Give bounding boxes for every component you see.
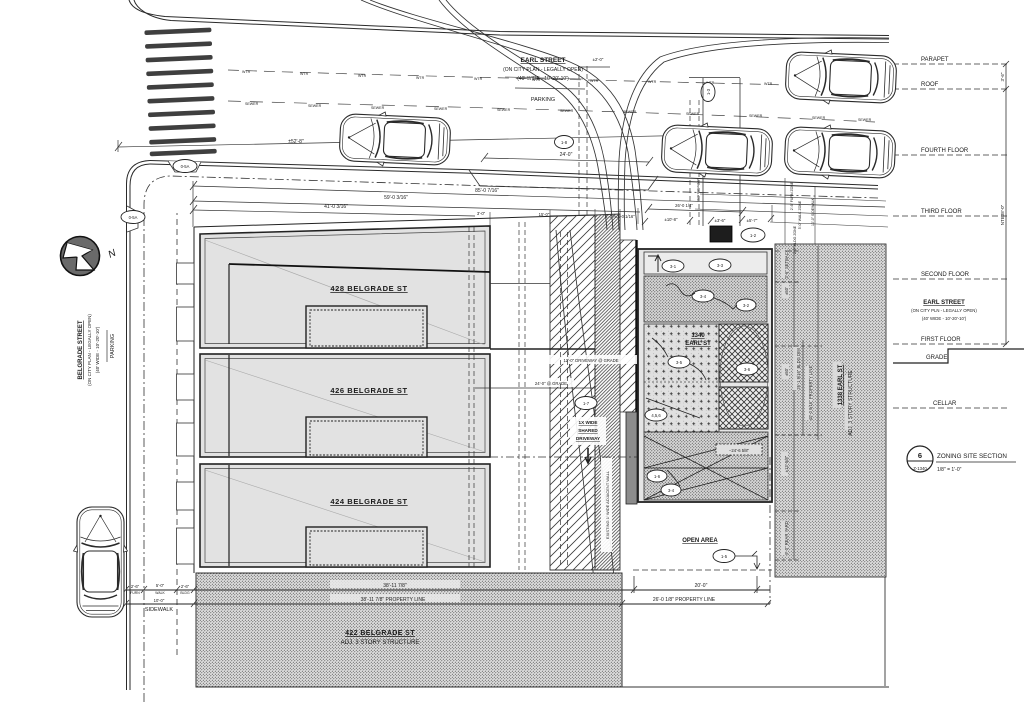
- svg-text:±3'-6": ±3'-6": [715, 218, 726, 223]
- svg-text:NTE38'-0": NTE38'-0": [1000, 204, 1005, 225]
- svg-text:ROOF: ROOF: [921, 82, 939, 88]
- svg-text:SEWER: SEWER: [560, 109, 574, 113]
- svg-text:3'-6" SETBACK: 3'-6" SETBACK: [784, 249, 789, 278]
- svg-text:±5'-7": ±5'-7": [747, 218, 758, 223]
- svg-text:OPEN AREA: OPEN AREA: [682, 538, 718, 544]
- svg-text:10'-0": 10'-0": [154, 598, 165, 603]
- svg-text:2'-6": 2'-6": [181, 584, 190, 589]
- svg-text:(ON CITY PLAN - LEGALLY OPEN): (ON CITY PLAN - LEGALLY OPEN): [87, 314, 92, 386]
- svg-text:SEWER: SEWER: [623, 110, 637, 114]
- svg-text:(40' WIDE - 10'-20'-10'): (40' WIDE - 10'-20'-10'): [95, 326, 100, 373]
- svg-text:FOURTH FLOOR: FOURTH FLOOR: [921, 148, 969, 154]
- svg-text:2'-6" FURN ZONE: 2'-6" FURN ZONE: [790, 181, 794, 210]
- svg-text:2'-6" BLDG ZONE: 2'-6" BLDG ZONE: [793, 225, 797, 254]
- svg-text:1-3: 1-3: [706, 88, 711, 95]
- svg-text:4,5,6: 4,5,6: [651, 413, 661, 418]
- svg-text:WTR: WTR: [590, 79, 599, 83]
- svg-text:±52'-8": ±52'-8": [288, 139, 304, 145]
- svg-text:EARL STREET: EARL STREET: [520, 57, 565, 64]
- svg-text:1-8: 1-8: [561, 140, 568, 145]
- svg-text:±13'-5/8": ±13'-5/8": [784, 455, 789, 472]
- svg-text:±50': ±50': [784, 368, 789, 376]
- svg-text:9'-0" REAR YARD: 9'-0" REAR YARD: [784, 521, 789, 555]
- svg-text:BELGRADE STREET: BELGRADE STREET: [78, 320, 84, 379]
- svg-text:CELLAR: CELLAR: [933, 401, 957, 407]
- svg-text:FURN: FURN: [130, 591, 140, 595]
- svg-text:WTR: WTR: [764, 82, 773, 86]
- svg-text:BLDG: BLDG: [180, 591, 190, 595]
- svg-text:EXISTING 1' WIDE ADJACENT WALL: EXISTING 1' WIDE ADJACENT WALL: [605, 470, 610, 539]
- svg-text:SEWER: SEWER: [749, 114, 763, 118]
- svg-text:SEWER: SEWER: [434, 107, 448, 111]
- svg-text:1-5: 1-5: [721, 554, 728, 559]
- svg-text:NEW DRIVEWAY: NEW DRIVEWAY: [696, 178, 700, 202]
- svg-text:SIDEWALK: SIDEWALK: [145, 607, 174, 613]
- svg-text:THIRD FLOOR: THIRD FLOOR: [921, 209, 962, 215]
- svg-text:38'-11 7/8": 38'-11 7/8": [383, 583, 407, 589]
- svg-text:ADJ. 3 STORY STRUCTURE: ADJ. 3 STORY STRUCTURE: [848, 370, 854, 436]
- svg-text:WTR: WTR: [358, 74, 367, 78]
- svg-text:3'-0": 3'-0": [477, 211, 486, 216]
- svg-text:3-6: 3-6: [744, 367, 751, 372]
- svg-text:FIRST FLOOR: FIRST FLOOR: [921, 337, 961, 343]
- svg-text:(ON CITY PLN - LEGALLY OPEN): (ON CITY PLN - LEGALLY OPEN): [911, 308, 977, 313]
- svg-text:1-2: 1-2: [750, 233, 757, 238]
- svg-text:424 BELGRADE ST: 424 BELGRADE ST: [330, 497, 407, 506]
- svg-text:38'-11 7/8" PROPERTY LINE: 38'-11 7/8" PROPERTY LINE: [361, 597, 426, 603]
- svg-text:0-5A: 0-5A: [181, 164, 190, 169]
- svg-text:3-3: 3-3: [717, 263, 724, 268]
- svg-text:1340: 1340: [691, 333, 705, 339]
- svg-text:±10'-8": ±10'-8": [665, 217, 678, 222]
- svg-text:3-4: 3-4: [668, 488, 675, 493]
- svg-text:WTR: WTR: [416, 76, 425, 80]
- svg-text:PARAPET: PARAPET: [921, 57, 949, 63]
- svg-text:426 BELGRADE ST: 426 BELGRADE ST: [330, 386, 407, 395]
- svg-text:3-2: 3-2: [743, 303, 750, 308]
- svg-text:ZONING SITE SECTION: ZONING SITE SECTION: [937, 453, 1007, 460]
- svg-text:(40' WIDE - 10'-20'-10'): (40' WIDE - 10'-20'-10'): [517, 76, 569, 82]
- svg-text:WTR: WTR: [474, 77, 483, 81]
- svg-text:SEWER: SEWER: [686, 112, 700, 116]
- svg-text:5'-0" WALK ZONE: 5'-0" WALK ZONE: [798, 200, 802, 229]
- svg-text:428 BELGRADE ST: 428 BELGRADE ST: [330, 284, 407, 293]
- svg-text:12'-0" DRIVEWAY @ GRADE: 12'-0" DRIVEWAY @ GRADE: [563, 358, 618, 363]
- svg-text:5'-0": 5'-0": [156, 583, 165, 588]
- svg-text:SECOND FLOOR: SECOND FLOOR: [921, 272, 970, 278]
- svg-text:SEWER: SEWER: [371, 106, 385, 110]
- svg-text:SEWER: SEWER: [245, 102, 259, 106]
- svg-text:WTR: WTR: [648, 80, 657, 84]
- svg-text:GRADE: GRADE: [926, 355, 947, 361]
- svg-text:SEWER: SEWER: [858, 118, 872, 122]
- svg-text:SEWER: SEWER: [308, 104, 322, 108]
- svg-text:26'-1 9/16" BLDG DIM: 26'-1 9/16" BLDG DIM: [796, 348, 801, 390]
- svg-text:1/8" = 1'-0": 1/8" = 1'-0": [937, 467, 962, 473]
- svg-text:3-4: 3-4: [700, 294, 707, 299]
- svg-text:EARL STREET: EARL STREET: [923, 300, 965, 306]
- svg-text:WALK: WALK: [155, 591, 165, 595]
- svg-text:±2'-0": ±2'-0": [593, 57, 604, 62]
- svg-text:26'-0 1/8" PROPERTY LINE: 26'-0 1/8" PROPERTY LINE: [653, 597, 716, 603]
- svg-text:59'-0 3/16": 59'-0 3/16": [384, 195, 408, 201]
- svg-text:85'-0 7/16": 85'-0 7/16": [475, 188, 499, 194]
- svg-text:1-6: 1-6: [654, 474, 661, 479]
- svg-text:24'-0" @ GRADE: 24'-0" @ GRADE: [535, 381, 567, 386]
- svg-text:1X WIDE: 1X WIDE: [579, 420, 598, 425]
- svg-text:EARL ST: EARL ST: [685, 341, 711, 347]
- svg-text:SEWER: SEWER: [497, 108, 511, 112]
- svg-text:PARKING: PARKING: [531, 97, 555, 103]
- svg-text:422 BELGRADE ST: 422 BELGRADE ST: [345, 630, 415, 637]
- svg-text:3'-6": 3'-6": [1000, 72, 1005, 81]
- svg-text:26'-0 1/4": 26'-0 1/4": [675, 203, 693, 208]
- svg-text:20'-0": 20'-0": [695, 583, 708, 589]
- svg-text:SEWER: SEWER: [812, 116, 826, 120]
- svg-text:DRIVEWAY: DRIVEWAY: [576, 436, 600, 441]
- svg-text:Z-1340: Z-1340: [913, 466, 927, 471]
- svg-text:41'-0 3/16": 41'-0 3/16": [324, 204, 348, 210]
- svg-text:SHARED: SHARED: [578, 428, 598, 433]
- svg-text:1-7: 1-7: [583, 401, 590, 406]
- svg-text:−24'-6 5/8": −24'-6 5/8": [729, 448, 750, 453]
- svg-text:2'-6": 2'-6": [131, 584, 140, 589]
- svg-text:40'-0 9/16" PROPERTY LINE: 40'-0 9/16" PROPERTY LINE: [808, 366, 813, 421]
- svg-text:24'-0": 24'-0": [560, 152, 573, 158]
- svg-text:PARKING: PARKING: [110, 334, 116, 358]
- svg-text:6: 6: [918, 451, 922, 460]
- svg-text:3-5: 3-5: [676, 360, 683, 365]
- svg-text:WTR: WTR: [242, 70, 251, 74]
- svg-text:ADJ. 3 STORY STRUCTURE: ADJ. 3 STORY STRUCTURE: [341, 640, 420, 646]
- svg-text:3-1: 3-1: [670, 264, 677, 269]
- svg-text:±50': ±50': [784, 287, 789, 295]
- svg-text:(ON CITY PLAN - LEGALLY OPEN): (ON CITY PLAN - LEGALLY OPEN): [503, 67, 583, 73]
- svg-text:1338 EARL ST: 1338 EARL ST: [838, 364, 844, 405]
- svg-text:10'-0" SIDEWALK: 10'-0" SIDEWALK: [811, 197, 815, 226]
- svg-text:0-5A: 0-5A: [129, 215, 138, 220]
- svg-text:WTR: WTR: [300, 72, 309, 76]
- svg-text:(40' WIDE - 10'-20'-10'): (40' WIDE - 10'-20'-10'): [922, 316, 967, 321]
